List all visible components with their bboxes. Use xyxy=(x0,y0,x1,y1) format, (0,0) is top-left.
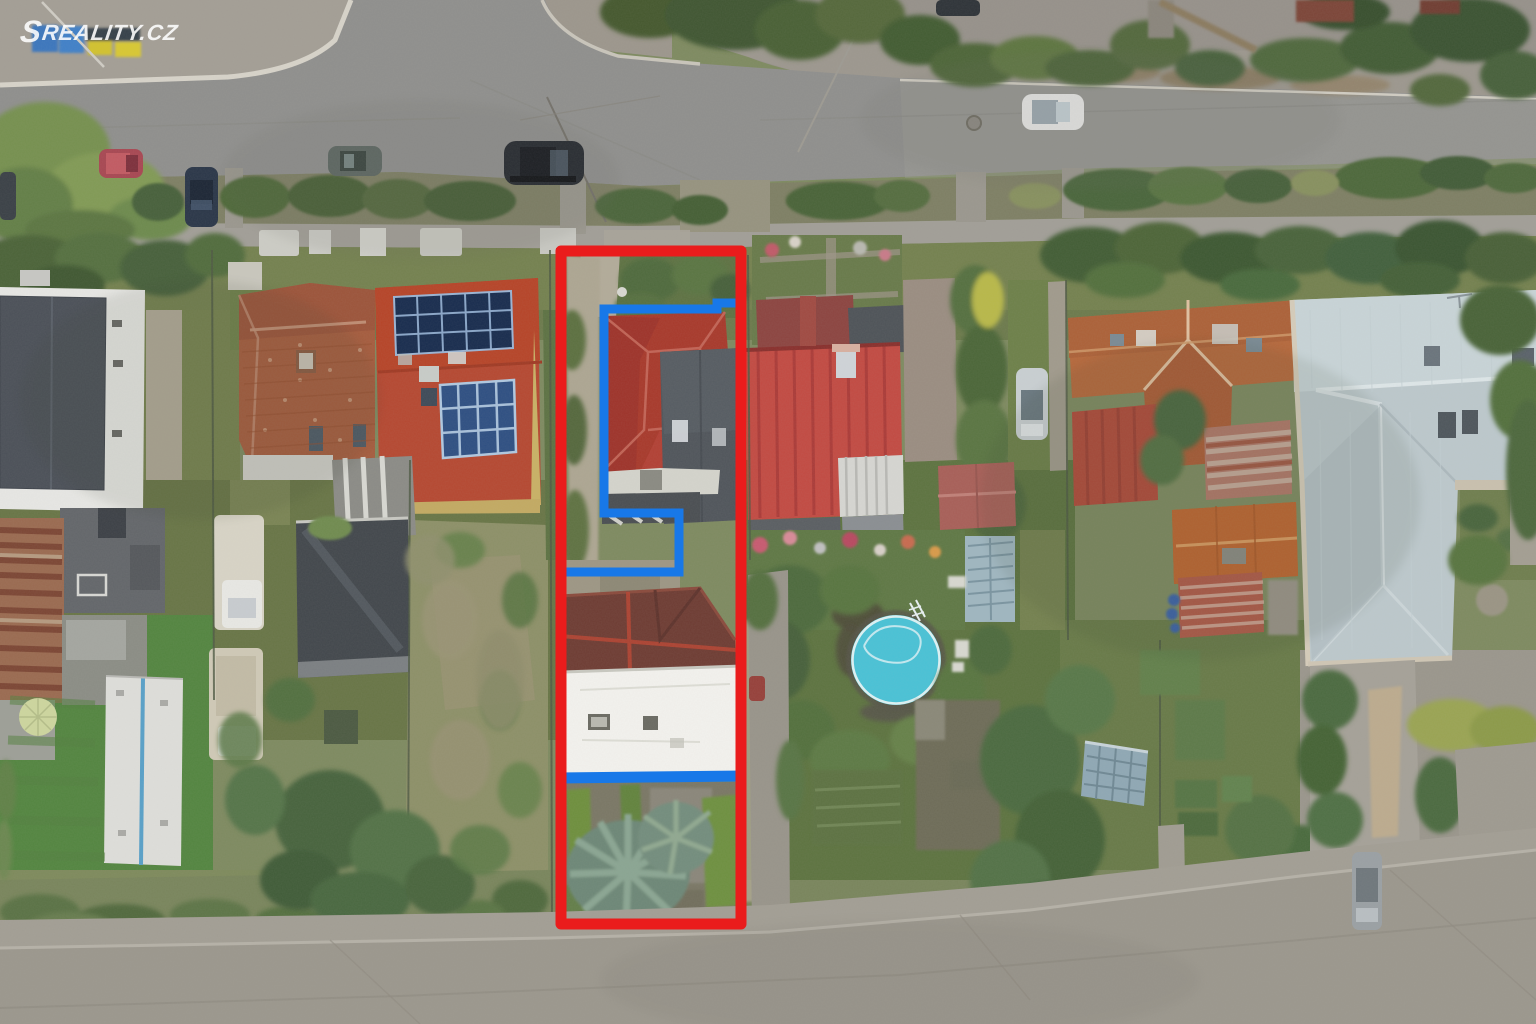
svg-text:REALITY.CZ: REALITY.CZ xyxy=(41,20,181,45)
